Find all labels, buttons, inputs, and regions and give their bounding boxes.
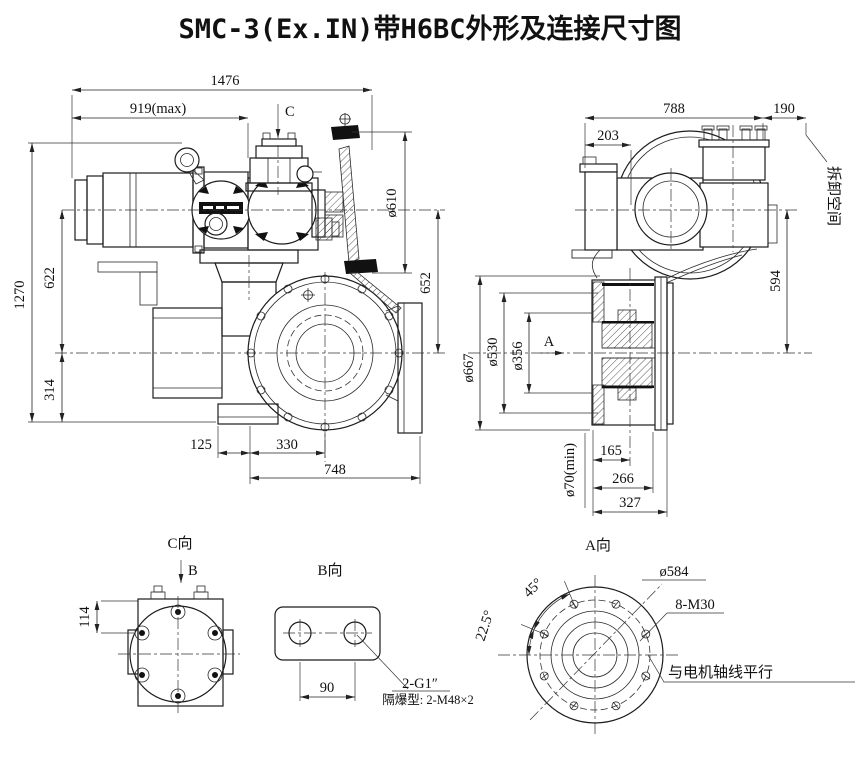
- dim-165-label: 165: [600, 443, 622, 459]
- dim-622-label: 622: [42, 267, 58, 289]
- dim-1476-label: 1476: [211, 73, 240, 89]
- terminal-box: [246, 133, 312, 191]
- dim-203-label: 203: [597, 128, 619, 144]
- dim-1270-label: 1270: [12, 281, 28, 310]
- view-b-title: B向: [317, 562, 342, 579]
- dim-22-5-label: 22.5°: [473, 608, 498, 643]
- parallel-note-label: 与电机轴线平行: [668, 664, 773, 681]
- motor-bracket: [98, 262, 157, 305]
- view-c: C向 B 114: [77, 535, 240, 714]
- callout-flameproof-label: 隔爆型: 2-M48×2: [382, 693, 473, 707]
- base-plate: [218, 404, 278, 424]
- dia-584-label: ø584: [660, 564, 690, 580]
- dim-190-label: 190: [773, 101, 795, 117]
- dim-652-label: 652: [418, 272, 434, 294]
- side-view-dimensions: 1476 919(max) C ø610 652 1270 622 314: [12, 73, 438, 484]
- drawing-page: SMC-3(Ex.IN)带H6BC外形及连接尺寸图: [0, 0, 858, 759]
- view-a: A向 45° 22.5° ø584 8-M30: [473, 537, 855, 735]
- callout-g1-label: 2-G1″: [402, 676, 438, 692]
- marker-b-label: B: [188, 563, 198, 579]
- dia-530-label: ø530: [485, 338, 501, 367]
- dim-594-label: 594: [768, 269, 784, 292]
- handwheel-rim-top: [331, 125, 360, 140]
- control-box-end: [580, 157, 617, 250]
- end-view: 788 190 拆卸空间 203 594 ø667 ø530 ø356: [461, 101, 842, 517]
- bell-housing: [592, 249, 757, 284]
- dia-70-label: ø70(min): [562, 443, 578, 497]
- dim-919-label: 919(max): [130, 101, 187, 117]
- dia-356-label: ø356: [510, 342, 526, 371]
- output-drum-section: [592, 277, 673, 430]
- dim-330-label: 330: [276, 437, 298, 453]
- drawing-canvas: SMC-3(Ex.IN)带H6BC外形及连接尺寸图: [0, 0, 858, 759]
- marker-c-label: C: [285, 104, 295, 120]
- handwheel-rim-bottom: [344, 259, 378, 274]
- dim-788-label: 788: [663, 101, 685, 117]
- view-b: B向 90 2-G1″ 隔爆型: 2-M48×2: [275, 562, 474, 707]
- dim-125-label: 125: [190, 437, 212, 453]
- side-view: 1476 919(max) C ø610 652 1270 622 314: [12, 73, 447, 484]
- dim-327-label: 327: [619, 495, 641, 511]
- drawing-title: SMC-3(Ex.IN)带H6BC外形及连接尺寸图: [178, 13, 681, 45]
- dia-667-label: ø667: [461, 354, 477, 383]
- dim-45-label: 45°: [520, 575, 546, 601]
- dia-610-label: ø610: [384, 189, 400, 218]
- dim-266-label: 266: [612, 471, 634, 487]
- dim-314-label: 314: [42, 378, 58, 401]
- view-a-title: A向: [585, 537, 611, 554]
- callout-8m30-label: 8-M30: [675, 597, 714, 613]
- removal-space-note: 拆卸空间: [825, 166, 842, 226]
- view-c-title: C向: [167, 535, 192, 552]
- dim-90-label: 90: [320, 680, 335, 696]
- dim-114-label: 114: [77, 606, 93, 628]
- dim-748-label: 748: [324, 462, 346, 478]
- marker-a-label: A: [544, 334, 555, 350]
